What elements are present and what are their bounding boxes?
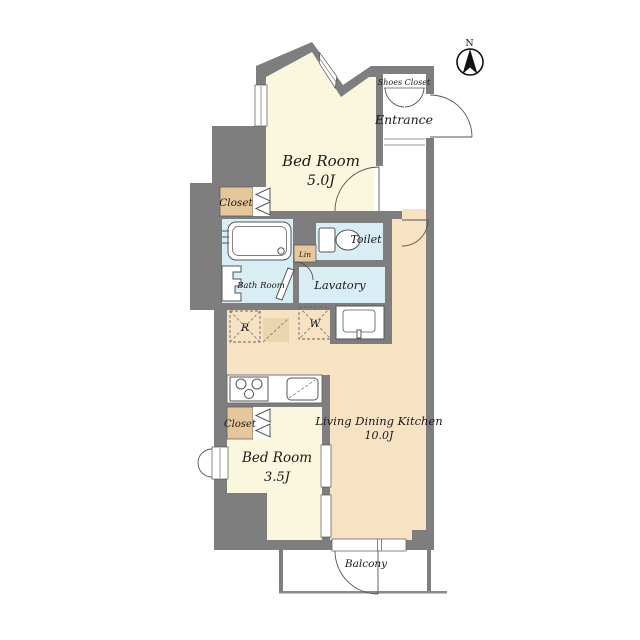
lavatory-label: Lavatory bbox=[313, 278, 366, 292]
balcony-left-wall bbox=[279, 550, 283, 593]
toilet-label: Toilet bbox=[350, 233, 382, 246]
vanity-faucet-icon bbox=[357, 330, 361, 338]
bedroom-main-door-opening bbox=[374, 166, 385, 211]
bedroom-small-size: 3.5J bbox=[264, 470, 291, 485]
balcony-label: Balcony bbox=[344, 558, 388, 570]
bathtub-drain-icon bbox=[278, 248, 284, 254]
balcony-door-window bbox=[332, 539, 406, 551]
bedroom-main-size: 5.0J bbox=[307, 173, 336, 189]
entrance-label: Entrance bbox=[374, 112, 433, 127]
bedroom-small-window-swing-arc bbox=[198, 449, 212, 477]
balcony-right-wall bbox=[427, 550, 431, 593]
ldk-label: Living Dining Kitchen bbox=[314, 414, 442, 428]
floor-plan-image: N Shoes Closet Entrance Bed Room 5.0J Cl… bbox=[0, 0, 640, 640]
compass-label: N bbox=[465, 38, 473, 49]
entrance-door-arc bbox=[430, 95, 472, 137]
refrigerator-label: R bbox=[240, 322, 249, 334]
stove-burner-icon bbox=[252, 379, 262, 389]
hall-to-ldk-opening bbox=[402, 209, 426, 221]
stove-burner-icon bbox=[236, 379, 246, 389]
north-compass: N bbox=[457, 38, 483, 75]
floor-plan-canvas: N Shoes Closet Entrance Bed Room 5.0J Cl… bbox=[0, 0, 640, 640]
bathroom-label: Bath Room bbox=[236, 281, 285, 291]
closet-lower-label: Closet bbox=[224, 419, 257, 430]
toilet-tank-icon bbox=[319, 228, 335, 252]
closet-upper-label: Closet bbox=[219, 197, 253, 209]
washer-label: W bbox=[310, 318, 322, 330]
stove-burner-icon bbox=[245, 390, 254, 399]
bedroom-main-label: Bed Room bbox=[281, 152, 360, 170]
linen-label: Lin bbox=[298, 250, 311, 259]
bedroom-small-label: Bed Room bbox=[241, 450, 312, 466]
sliding-door-panel bbox=[321, 495, 331, 537]
ldk-size: 10.0J bbox=[365, 429, 394, 442]
shoes-closet-label: Shoes Closet bbox=[378, 78, 431, 87]
sliding-door-panel bbox=[321, 445, 331, 487]
entrance-hall-floor bbox=[383, 74, 426, 211]
